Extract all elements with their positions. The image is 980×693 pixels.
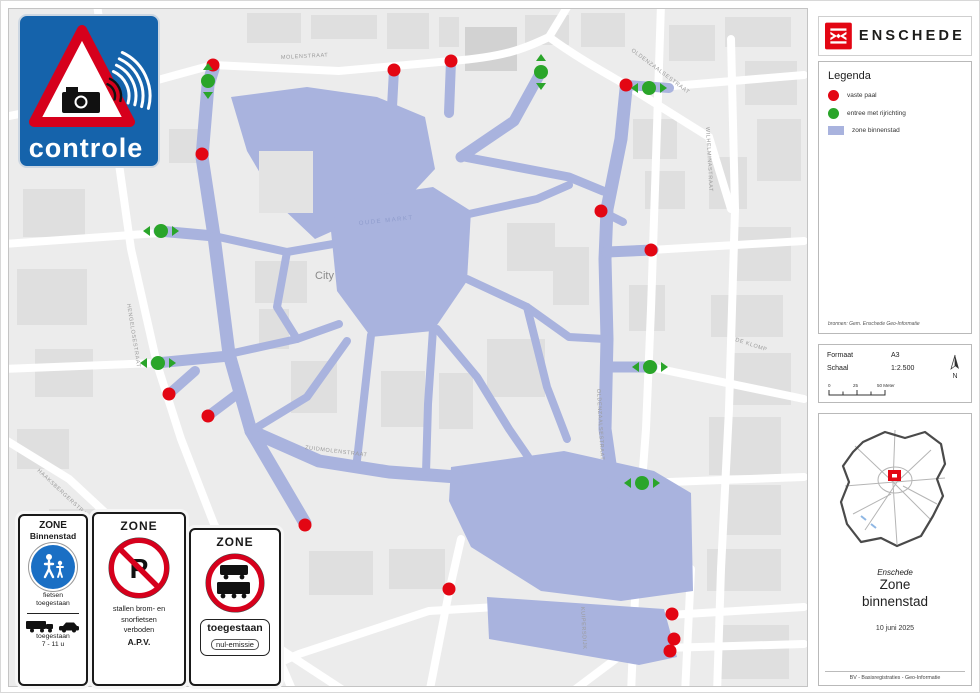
scale-value: 1:2.500 <box>891 365 914 372</box>
radar-waves-icon <box>108 53 151 109</box>
entree-dot <box>201 74 215 88</box>
vaste-paal-marker <box>664 645 677 658</box>
no-parking-sign-icon: P <box>107 536 171 600</box>
vaste-paal-marker <box>196 148 209 161</box>
municipality-name: Enschede <box>825 568 965 577</box>
exception-subsign: toegestaan nul-emissie <box>200 619 269 656</box>
scalebar-25: 25 <box>853 383 859 388</box>
municipality-header: ENSCHEDE <box>818 16 972 56</box>
legend-item-zone: zone binnenstad <box>828 126 962 135</box>
format-value: A3 <box>891 352 900 359</box>
zone-header: ZONE <box>39 520 67 531</box>
allow-line1: fietsen <box>36 592 70 600</box>
street-label: DE KLOMP <box>734 337 767 353</box>
legend-item-label: zone binnenstad <box>852 127 900 134</box>
entree-dot <box>151 356 165 370</box>
vaste-paal-marker <box>666 608 679 621</box>
legend-item-label: entree met rijrichting <box>847 110 906 117</box>
entree-dot <box>642 81 656 95</box>
city-label: City <box>315 270 334 282</box>
source-note: bronnen: Gem. Enschede Geo-Informatie <box>828 321 920 327</box>
legend: Legenda vaste paal entree met rijrichtin… <box>818 61 972 334</box>
divider <box>27 613 79 614</box>
controle-label: controle <box>29 133 144 163</box>
vaste-paal-marker <box>595 205 608 218</box>
map-title-line2: binnenstad <box>825 594 965 611</box>
format-scale-box: Formaat A3 Schaal 1:2.500 0 25 50 Meter … <box>818 344 972 403</box>
scalebar-50: 50 Meter <box>877 383 895 388</box>
credit-line: BV - Basisregistraties - Geo-Informatie <box>825 671 965 681</box>
camera-control-graphic: controle <box>20 16 158 166</box>
brand-name: ENSCHEDE <box>859 28 965 44</box>
vaste-paal-marker <box>668 633 681 646</box>
prohibition-line1: stallen brom- en <box>113 604 165 615</box>
legend-item-label: vaste paal <box>847 92 877 99</box>
vaste-paal-marker <box>645 244 658 257</box>
scale-label: Schaal <box>827 365 873 372</box>
water-marks <box>861 516 876 528</box>
street-label: HENGELOSESTRAAT <box>125 303 141 368</box>
camera-control-sign: controle <box>18 14 160 168</box>
zone-swatch <box>828 126 844 135</box>
vaste-paal-marker <box>388 64 401 77</box>
zone-header: ZONE <box>216 535 253 549</box>
north-arrow-icon: N <box>947 353 963 381</box>
map-sheet: { "controle_sign": { "label": "controle"… <box>0 0 980 693</box>
north-label: N <box>952 373 957 380</box>
truck-car-icons <box>25 617 81 633</box>
scale-bar: 0 25 50 Meter <box>827 381 905 397</box>
apv-label: A.P.V. <box>113 636 165 648</box>
vaste-paal-marker <box>445 55 458 68</box>
title-block: Enschede Zone binnenstad 10 juni 2025 BV… <box>818 413 972 686</box>
no-parking-zone-sign: ZONE P stallen brom- en snorfietsen verb… <box>92 512 186 686</box>
truck-zone-sign: ZONE toegestaan nul-emissie <box>189 528 281 686</box>
entree-dot <box>154 224 168 238</box>
prohibition-line3: verboden <box>113 625 165 636</box>
legend-title: Legenda <box>828 70 962 82</box>
format-label: Formaat <box>827 352 873 359</box>
zone-locator-inner <box>892 474 897 478</box>
vaste-paal-marker <box>620 79 633 92</box>
vaste-paal-marker <box>443 583 456 596</box>
green-dot-swatch <box>828 108 839 119</box>
entree-dot <box>534 65 548 79</box>
vaste-paal-marker <box>163 388 176 401</box>
direction-arrow-icon <box>536 54 546 61</box>
legend-item-vaste-paal: vaste paal <box>828 90 962 101</box>
zone-header: ZONE <box>120 519 157 533</box>
prohibition-line2: snorfietsen <box>113 615 165 626</box>
allow-line2: toegestaan <box>36 600 70 608</box>
bottom-line1: toegestaan <box>36 633 70 641</box>
pedestrian-zone-sign: ZONE Binnenstad fietsen toegestaan toege… <box>18 514 88 686</box>
enschede-logo-icon <box>825 21 852 51</box>
zone-subheader: Binnenstad <box>30 531 76 541</box>
station-block <box>259 151 313 213</box>
subsign-line2: nul-emissie <box>211 639 259 650</box>
bottom-line2: 7 - 11 u <box>36 641 70 649</box>
scalebar-0: 0 <box>828 383 831 388</box>
entree-dot <box>635 476 649 490</box>
subsign-line1: toegestaan <box>207 622 262 634</box>
legend-item-entree: entree met rijrichting <box>828 108 962 119</box>
map-title-line1: Zone <box>825 577 965 594</box>
truck-prohibition-icon <box>204 552 266 614</box>
vaste-paal-marker <box>299 519 312 532</box>
street-label: MOLENSTRAAT <box>281 53 329 61</box>
red-dot-swatch <box>828 90 839 101</box>
entree-dot <box>643 360 657 374</box>
inset-roads <box>845 430 945 544</box>
pedestrian-sign-icon <box>31 545 75 589</box>
vaste-paal-marker <box>202 410 215 423</box>
map-date: 10 juni 2025 <box>825 625 965 632</box>
municipality-inset-map <box>833 424 957 562</box>
